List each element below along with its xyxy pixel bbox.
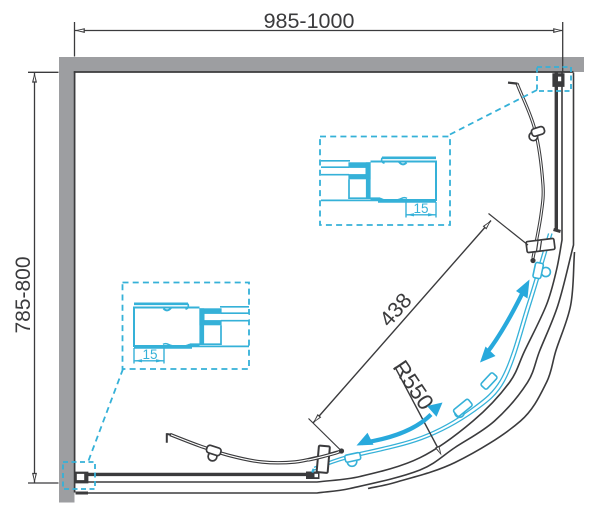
svg-text:15: 15: [142, 347, 157, 362]
svg-text:985-1000: 985-1000: [264, 9, 355, 33]
svg-text:785-800: 785-800: [12, 256, 35, 333]
svg-text:15: 15: [413, 201, 428, 216]
